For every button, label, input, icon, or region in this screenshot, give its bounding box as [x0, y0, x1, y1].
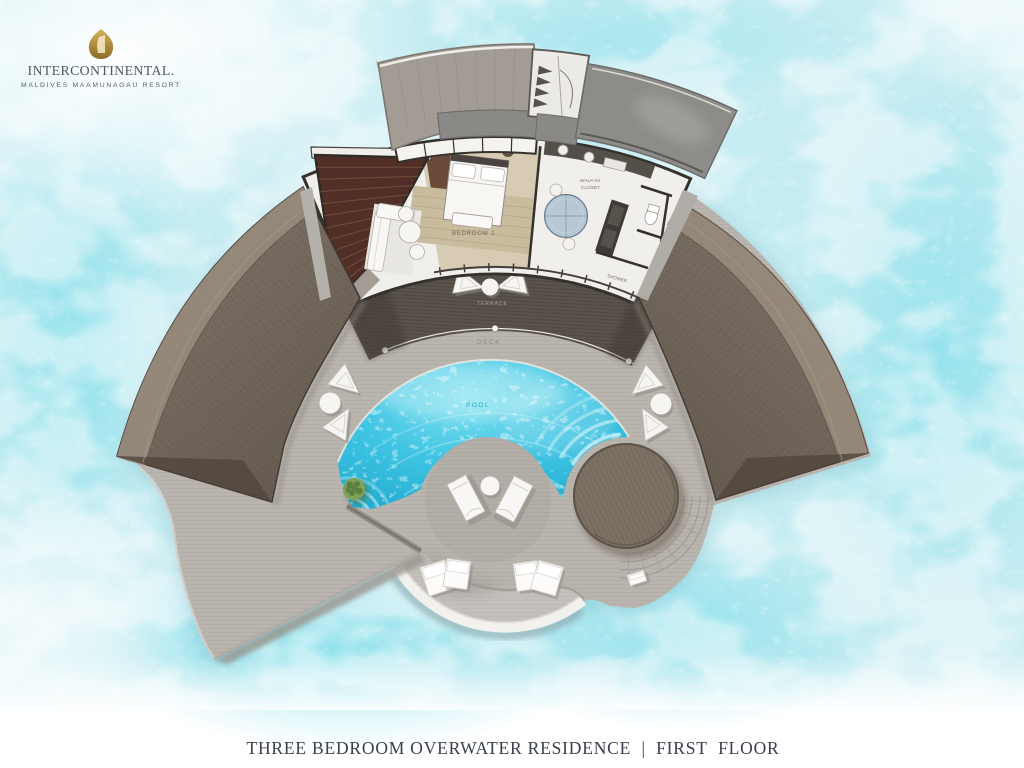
svg-text:TERRACE: TERRACE [477, 301, 508, 307]
svg-text:INTERCONTINENTAL.: INTERCONTINENTAL. [27, 63, 174, 78]
svg-text:BEDROOM 1: BEDROOM 1 [452, 231, 495, 237]
svg-text:MALDIVES MAAMUNAGAU RESORT: MALDIVES MAAMUNAGAU RESORT [21, 82, 181, 89]
svg-text:DECK: DECK [477, 339, 501, 346]
svg-text:CLOSET: CLOSET [581, 185, 600, 191]
svg-text:POOL: POOL [466, 402, 490, 409]
svg-text:WALK-IN: WALK-IN [580, 178, 600, 184]
svg-text:THREE BEDROOM OVERWATER RESIDE: THREE BEDROOM OVERWATER RESIDENCE | FIRS… [246, 738, 779, 758]
